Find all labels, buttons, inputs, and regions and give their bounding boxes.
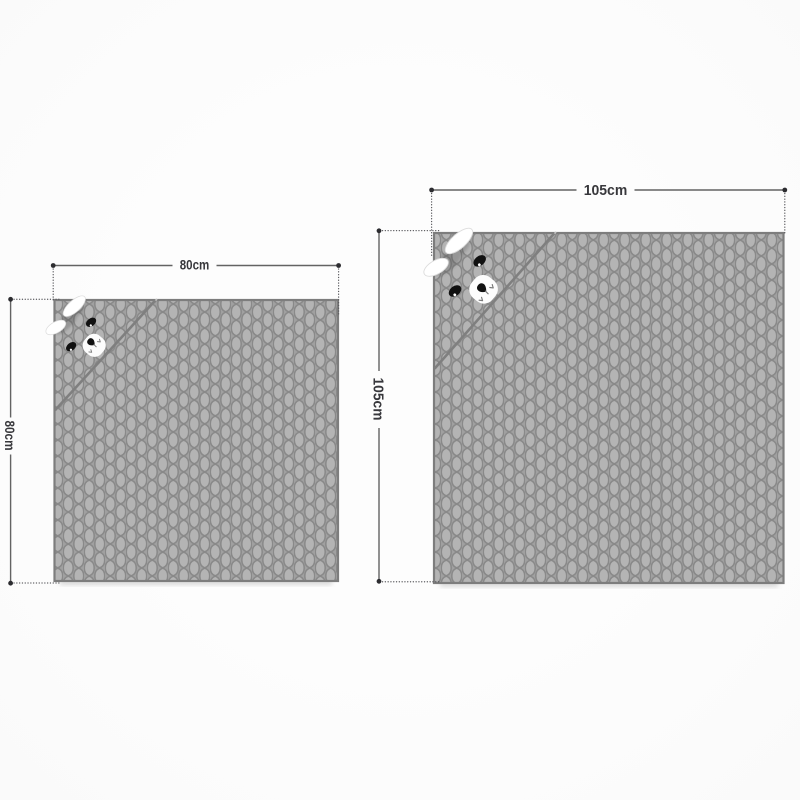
- svg-text:80cm: 80cm: [180, 256, 210, 272]
- svg-text:105cm: 105cm: [584, 182, 628, 199]
- svg-text:80cm: 80cm: [2, 421, 17, 451]
- svg-text:105cm: 105cm: [369, 378, 385, 421]
